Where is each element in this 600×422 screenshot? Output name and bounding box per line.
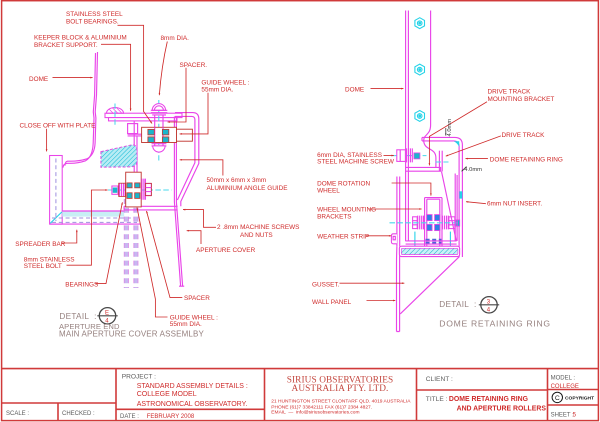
svg-text:DOME RETAINING RING: DOME RETAINING RING <box>449 396 528 403</box>
svg-text:APERTURE COVER: APERTURE COVER <box>196 247 256 254</box>
svg-text:CHECKED :: CHECKED : <box>62 411 95 417</box>
svg-text:21 HUNTINGTON STREET CLONTARF: 21 HUNTINGTON STREET CLONTARF QLD. 4019 … <box>271 398 411 404</box>
svg-text:PROJECT :: PROJECT : <box>122 373 156 380</box>
svg-text:FEBRUARY 2008: FEBRUARY 2008 <box>147 414 195 420</box>
svg-text:DOME RETAINING RING: DOME RETAINING RING <box>490 156 563 163</box>
svg-text:MOUNTING BRACKET: MOUNTING BRACKET <box>488 96 555 103</box>
svg-text:8mm DIA.: 8mm DIA. <box>161 35 190 42</box>
svg-text:GUSSET.: GUSSET. <box>312 281 340 288</box>
svg-text:4.0mm: 4.0mm <box>447 119 453 137</box>
svg-text:COPYRIGHT: COPYRIGHT <box>565 395 594 401</box>
svg-text:TITLE :: TITLE : <box>426 396 448 403</box>
svg-text:SHEET :: SHEET : <box>551 412 575 418</box>
svg-text:SPACER.: SPACER. <box>180 62 208 69</box>
svg-text:PHONE (61)7 33842111 FAX (61)7: PHONE (61)7 33842111 FAX (61)7 2384 4827… <box>271 404 372 410</box>
svg-text:BRACKETS: BRACKETS <box>317 213 351 220</box>
svg-text:STEEL MACHINE SCREW: STEEL MACHINE SCREW <box>317 159 395 166</box>
svg-text:2 .8mm MACHINE SCREWS: 2 .8mm MACHINE SCREWS <box>217 224 299 231</box>
svg-text:STEEL BOLT: STEEL BOLT <box>24 263 62 270</box>
svg-text:55mm DIA.: 55mm DIA. <box>170 321 202 328</box>
svg-text:BRACKET SUPPORT.: BRACKET SUPPORT. <box>34 42 98 49</box>
svg-text:ASTRONOMICAL OBSERVATORY.: ASTRONOMICAL OBSERVATORY. <box>137 401 248 408</box>
svg-text:DATE :: DATE : <box>120 414 139 420</box>
svg-text:MODEL :: MODEL : <box>551 375 576 381</box>
svg-text:55mm DIA.: 55mm DIA. <box>201 87 233 94</box>
svg-text:SPREADER BAR: SPREADER BAR <box>15 241 65 248</box>
svg-text:50mm x 6mm x 3mm: 50mm x 6mm x 3mm <box>207 177 267 184</box>
svg-text:DRIVE TRACK: DRIVE TRACK <box>488 88 532 95</box>
svg-text:6mm NUT INSERT.: 6mm NUT INSERT. <box>487 200 542 207</box>
svg-text:DETAIL :: DETAIL : <box>439 300 476 309</box>
svg-text:DOME: DOME <box>345 87 364 94</box>
svg-text:STANDARD ASSEMBLY DETAILS :: STANDARD ASSEMBLY DETAILS : <box>137 383 248 390</box>
svg-text:KEEPER BLOCK & ALUMINIUM: KEEPER BLOCK & ALUMINIUM <box>34 34 127 41</box>
svg-text:SPACER: SPACER <box>184 295 210 302</box>
svg-text:DOME: DOME <box>29 76 48 83</box>
svg-text:WEATHER STRIP: WEATHER STRIP <box>317 233 369 240</box>
svg-text:4.0mm: 4.0mm <box>464 167 482 173</box>
svg-text:STAINLESS STEEL: STAINLESS STEEL <box>66 11 123 18</box>
svg-text:DETAIL :: DETAIL : <box>59 312 96 321</box>
svg-text:MAIN APERTURE COVER ASSEMLBY: MAIN APERTURE COVER ASSEMLBY <box>59 330 204 339</box>
svg-text:ALUMINIUM ANGLE GUIDE: ALUMINIUM ANGLE GUIDE <box>207 185 288 192</box>
svg-text:E: E <box>105 311 109 317</box>
svg-text:SCALE :: SCALE : <box>6 411 29 417</box>
svg-text:BEARINGS: BEARINGS <box>65 281 98 288</box>
svg-text:AUSTRALIA PTY. LTD.: AUSTRALIA PTY. LTD. <box>292 384 389 394</box>
svg-text:DRIVE TRACK: DRIVE TRACK <box>502 132 546 139</box>
svg-text:C: C <box>555 395 560 402</box>
svg-text:COLLEGE MODEL: COLLEGE MODEL <box>137 391 197 398</box>
svg-text:EMAIL — info@siriusobservato: EMAIL — info@siriusobservatories.com <box>271 410 359 416</box>
svg-text:CLIENT :: CLIENT : <box>426 376 453 383</box>
svg-text:AND APERTURE ROLLERS: AND APERTURE ROLLERS <box>457 405 547 412</box>
svg-text:WHEEL: WHEEL <box>317 187 340 194</box>
svg-text:BOLT BEARINGS.: BOLT BEARINGS. <box>66 18 119 25</box>
svg-text:WALL PANEL: WALL PANEL <box>312 299 352 306</box>
svg-text:AND NUTS: AND NUTS <box>240 232 273 239</box>
svg-text:COLLEGE: COLLEGE <box>551 384 579 390</box>
svg-text:CLOSE OFF WITH PLATE: CLOSE OFF WITH PLATE <box>20 123 96 130</box>
svg-text:DOME RETAINING RING: DOME RETAINING RING <box>439 319 551 329</box>
